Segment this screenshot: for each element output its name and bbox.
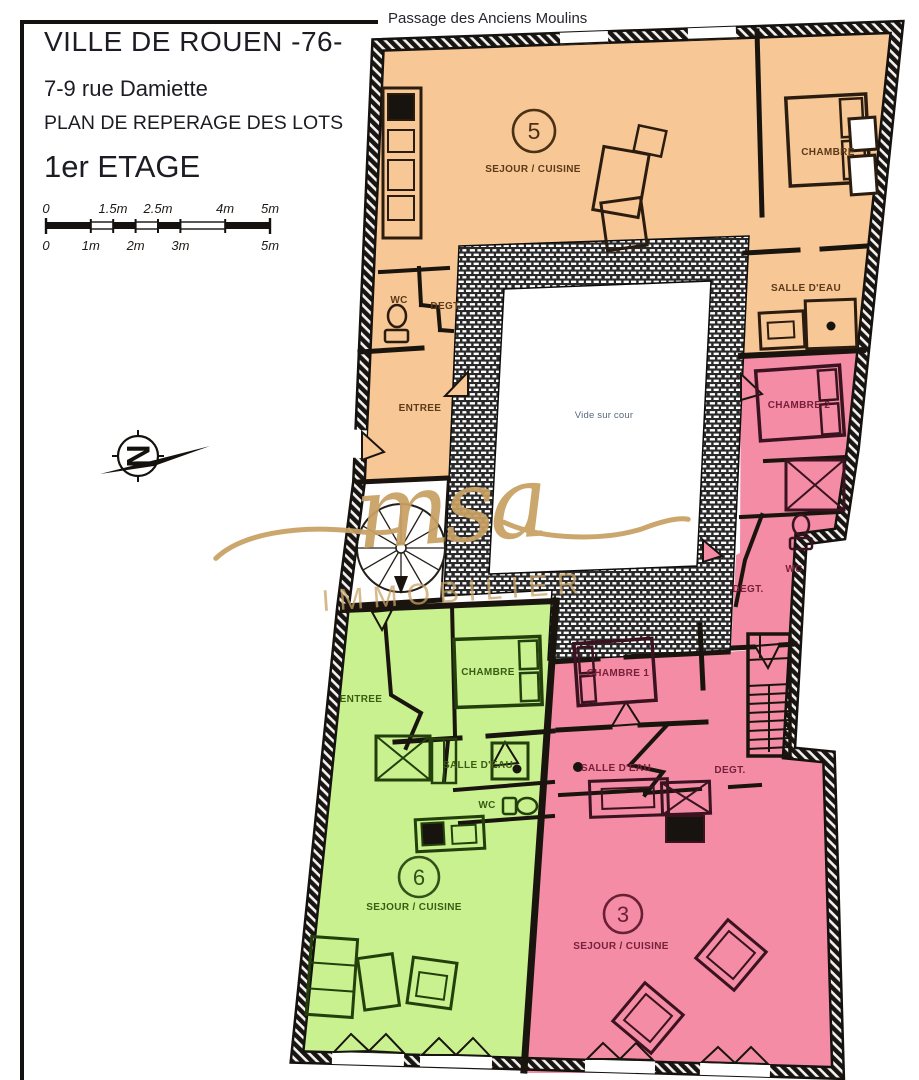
lot6-number: 6	[413, 865, 425, 890]
label-lot5-entree: ENTREE	[399, 403, 442, 414]
label-lot5-sejour: SEJOUR / CUISINE	[485, 164, 581, 175]
watermark-script-text: msa	[351, 443, 546, 573]
label-lot5-wc: WC	[390, 295, 407, 306]
label-lot5-chambre: CHAMBRE	[801, 147, 855, 158]
watermark-caps-text: IMMOBILIER	[321, 567, 589, 619]
lot5-number: 5	[528, 118, 541, 144]
label-lot3-chambre1: CHAMBRE 1	[587, 668, 650, 679]
label-lot6-chambre: CHAMBRE	[461, 667, 515, 678]
label-lot3-degt-upper: DEGT.	[732, 584, 763, 595]
label-lot6-salle-eau: SALLE D'EAU	[443, 760, 513, 771]
floor-plan-page: VILLE DE ROUEN -76- 7-9 rue Damiette PLA…	[0, 0, 919, 1080]
label-courtyard: Vide sur cour	[575, 410, 633, 421]
label-lot3-degt-lower: DEGT.	[714, 765, 745, 776]
label-lot3-wc: WC	[785, 564, 802, 575]
label-lot6-entree: ENTREE	[340, 694, 383, 705]
label-lot3-salle-eau: SALLE D'EAU	[581, 763, 651, 774]
label-lot6-sejour: SEJOUR / CUISINE	[366, 902, 462, 913]
label-lot3-sejour: SEJOUR / CUISINE	[573, 941, 669, 952]
label-lot6-wc: WC	[478, 800, 495, 811]
lot3-number: 3	[617, 902, 629, 927]
watermark-logo: msa IMMOBILIER	[200, 430, 700, 620]
label-lot5-degt: DEGT.	[430, 301, 461, 312]
label-lot5-salle-eau: SALLE D'EAU	[771, 283, 841, 294]
label-lot3-chambre2: CHAMBRE 2	[768, 400, 831, 411]
